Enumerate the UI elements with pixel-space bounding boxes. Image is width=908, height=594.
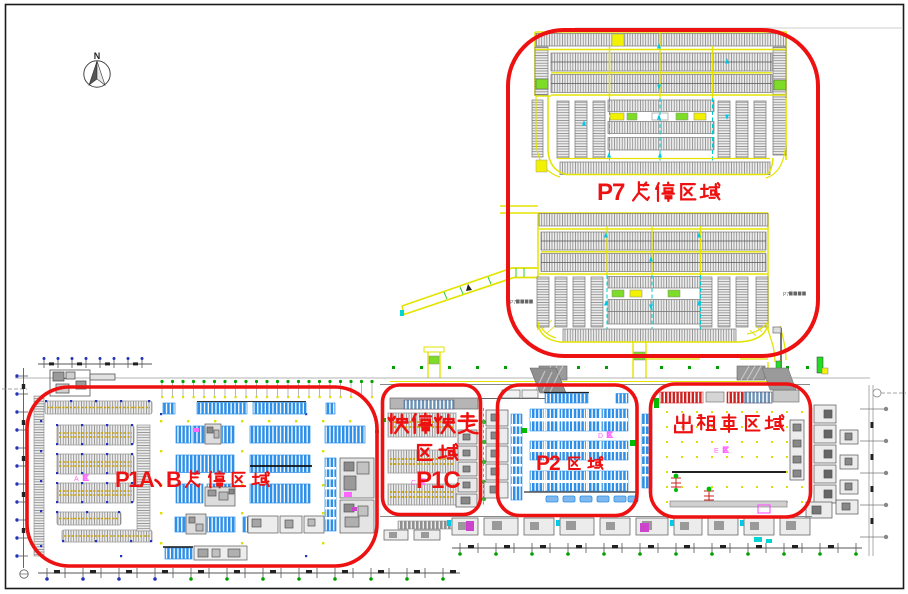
svg-text:A: A bbox=[74, 476, 79, 483]
svg-text:P7: P7 bbox=[510, 300, 516, 306]
svg-text:P1A: P1A bbox=[115, 467, 155, 492]
svg-text:P1C: P1C bbox=[416, 467, 460, 494]
svg-text:N: N bbox=[94, 51, 101, 61]
svg-text:P7: P7 bbox=[597, 179, 625, 206]
svg-text:B: B bbox=[166, 467, 182, 492]
svg-text:E: E bbox=[714, 448, 719, 455]
svg-text:P7: P7 bbox=[783, 292, 789, 298]
svg-text:D: D bbox=[598, 433, 603, 440]
svg-text:P2: P2 bbox=[536, 452, 560, 475]
